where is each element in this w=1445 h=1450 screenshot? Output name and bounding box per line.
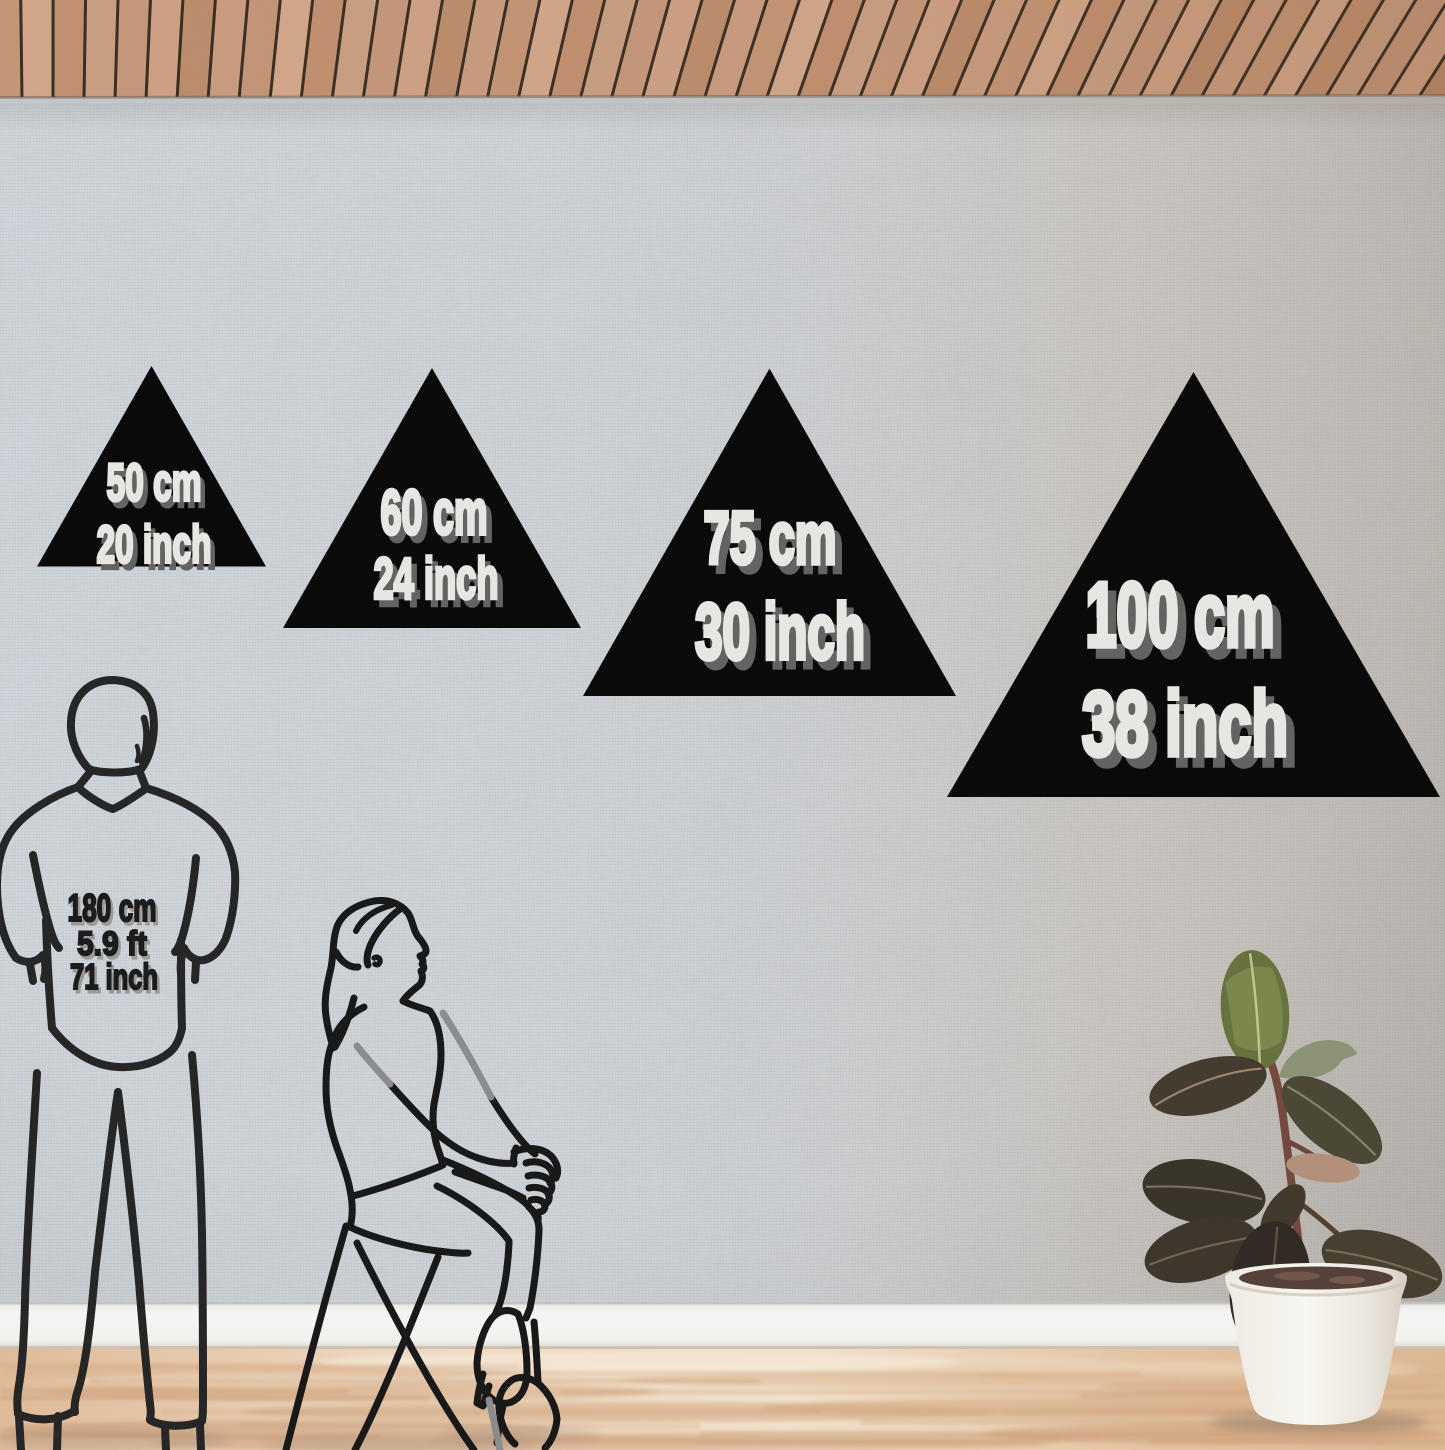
svg-text:75 cm: 75 cm bbox=[704, 497, 837, 580]
svg-text:100 cm: 100 cm bbox=[1086, 565, 1275, 666]
svg-text:20 inch: 20 inch bbox=[97, 515, 212, 574]
svg-text:50 cm: 50 cm bbox=[107, 453, 202, 512]
svg-text:60 cm: 60 cm bbox=[381, 478, 488, 548]
svg-text:30 inch: 30 inch bbox=[695, 587, 865, 676]
svg-text:71 inch: 71 inch bbox=[70, 956, 158, 997]
svg-text:24 inch: 24 inch bbox=[374, 547, 499, 612]
svg-text:38 inch: 38 inch bbox=[1082, 674, 1288, 775]
svg-text:180 cm: 180 cm bbox=[68, 887, 157, 930]
